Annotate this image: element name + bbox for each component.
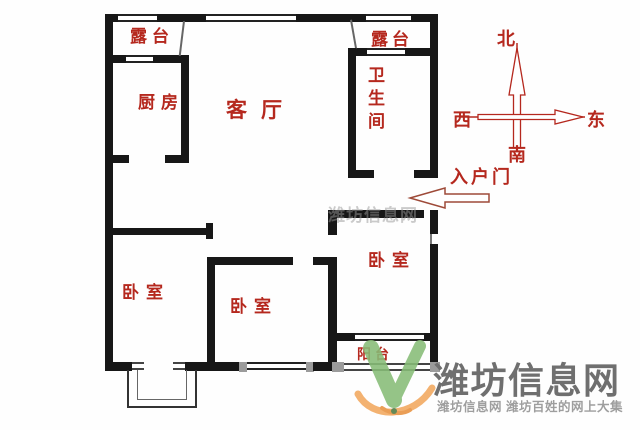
window-segment <box>126 55 153 63</box>
wall-segment <box>105 228 212 235</box>
window-segment <box>132 362 144 370</box>
wall-segment <box>430 14 438 178</box>
window-segment <box>366 14 411 22</box>
window-cap <box>239 362 247 372</box>
wall-segment <box>328 257 337 362</box>
door-notch <box>430 234 440 244</box>
bay-window-inner <box>137 370 187 400</box>
wall-segment <box>105 14 113 371</box>
wall-segment <box>105 155 129 163</box>
room-label-kitchen: 厨房 <box>138 88 184 113</box>
watermark-tagline: 潍坊信息网 潍坊百姓的网上大集 <box>437 396 623 415</box>
window-segment <box>247 362 307 370</box>
wall-segment <box>296 14 366 22</box>
window-cap <box>332 362 344 372</box>
room-label-bedroom-middle: 卧室 <box>230 292 278 317</box>
wall-segment <box>165 155 189 163</box>
room-label-terrace-right: 露台 <box>371 25 413 50</box>
wall-segment <box>348 170 374 178</box>
room-label-bedroom-right: 卧室 <box>368 246 416 271</box>
site-logo-icon <box>352 336 444 426</box>
floor-plan: 潍坊信息网 露台 厨房 客厅 露台 卫生间 卧室 卧室 卧室 阳台 入户门 北 … <box>0 0 640 430</box>
room-label-living-room: 客厅 <box>226 94 296 124</box>
window-segment <box>206 14 296 22</box>
compass-label-south: 南 <box>508 141 526 167</box>
room-label-bathroom: 卫生间 <box>368 64 388 133</box>
room-label-terrace-left: 露台 <box>130 22 174 47</box>
window-segment <box>118 14 157 22</box>
wall-segment <box>157 14 206 22</box>
room-label-bedroom-left: 卧室 <box>122 278 170 303</box>
wall-segment <box>430 210 438 234</box>
wall-segment <box>105 55 126 63</box>
window-segment <box>173 362 185 370</box>
wall-cap <box>206 223 213 239</box>
wall-segment <box>414 170 438 178</box>
compass-label-east: 东 <box>587 106 605 132</box>
wall-segment <box>328 333 355 341</box>
compass-icon <box>450 40 590 155</box>
compass-label-west: 西 <box>453 106 471 132</box>
wall-segment <box>207 257 215 362</box>
compass-north-arrow <box>509 48 525 148</box>
wall-segment <box>348 48 356 178</box>
terrace-edge-line <box>350 20 357 49</box>
wall-segment <box>207 257 293 265</box>
entrance-arrow-icon <box>405 185 495 211</box>
compass-label-north: 北 <box>497 25 515 51</box>
compass-east-arrow <box>478 110 583 124</box>
terrace-edge-line <box>179 21 185 56</box>
